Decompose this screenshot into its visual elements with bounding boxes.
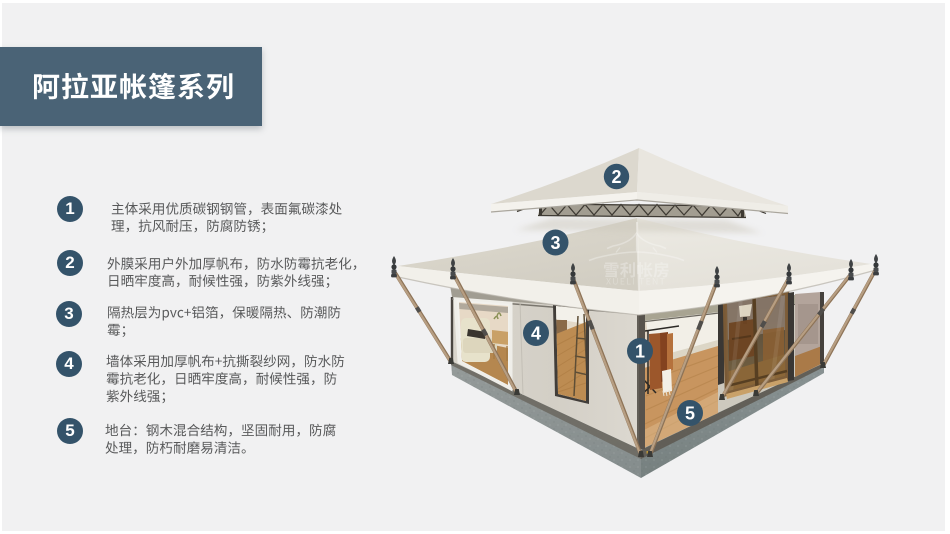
svg-text:3: 3 — [550, 233, 560, 253]
svg-text:2: 2 — [611, 167, 621, 187]
svg-text:1: 1 — [635, 342, 645, 362]
svg-text:5: 5 — [685, 404, 695, 424]
svg-text:4: 4 — [531, 324, 541, 344]
